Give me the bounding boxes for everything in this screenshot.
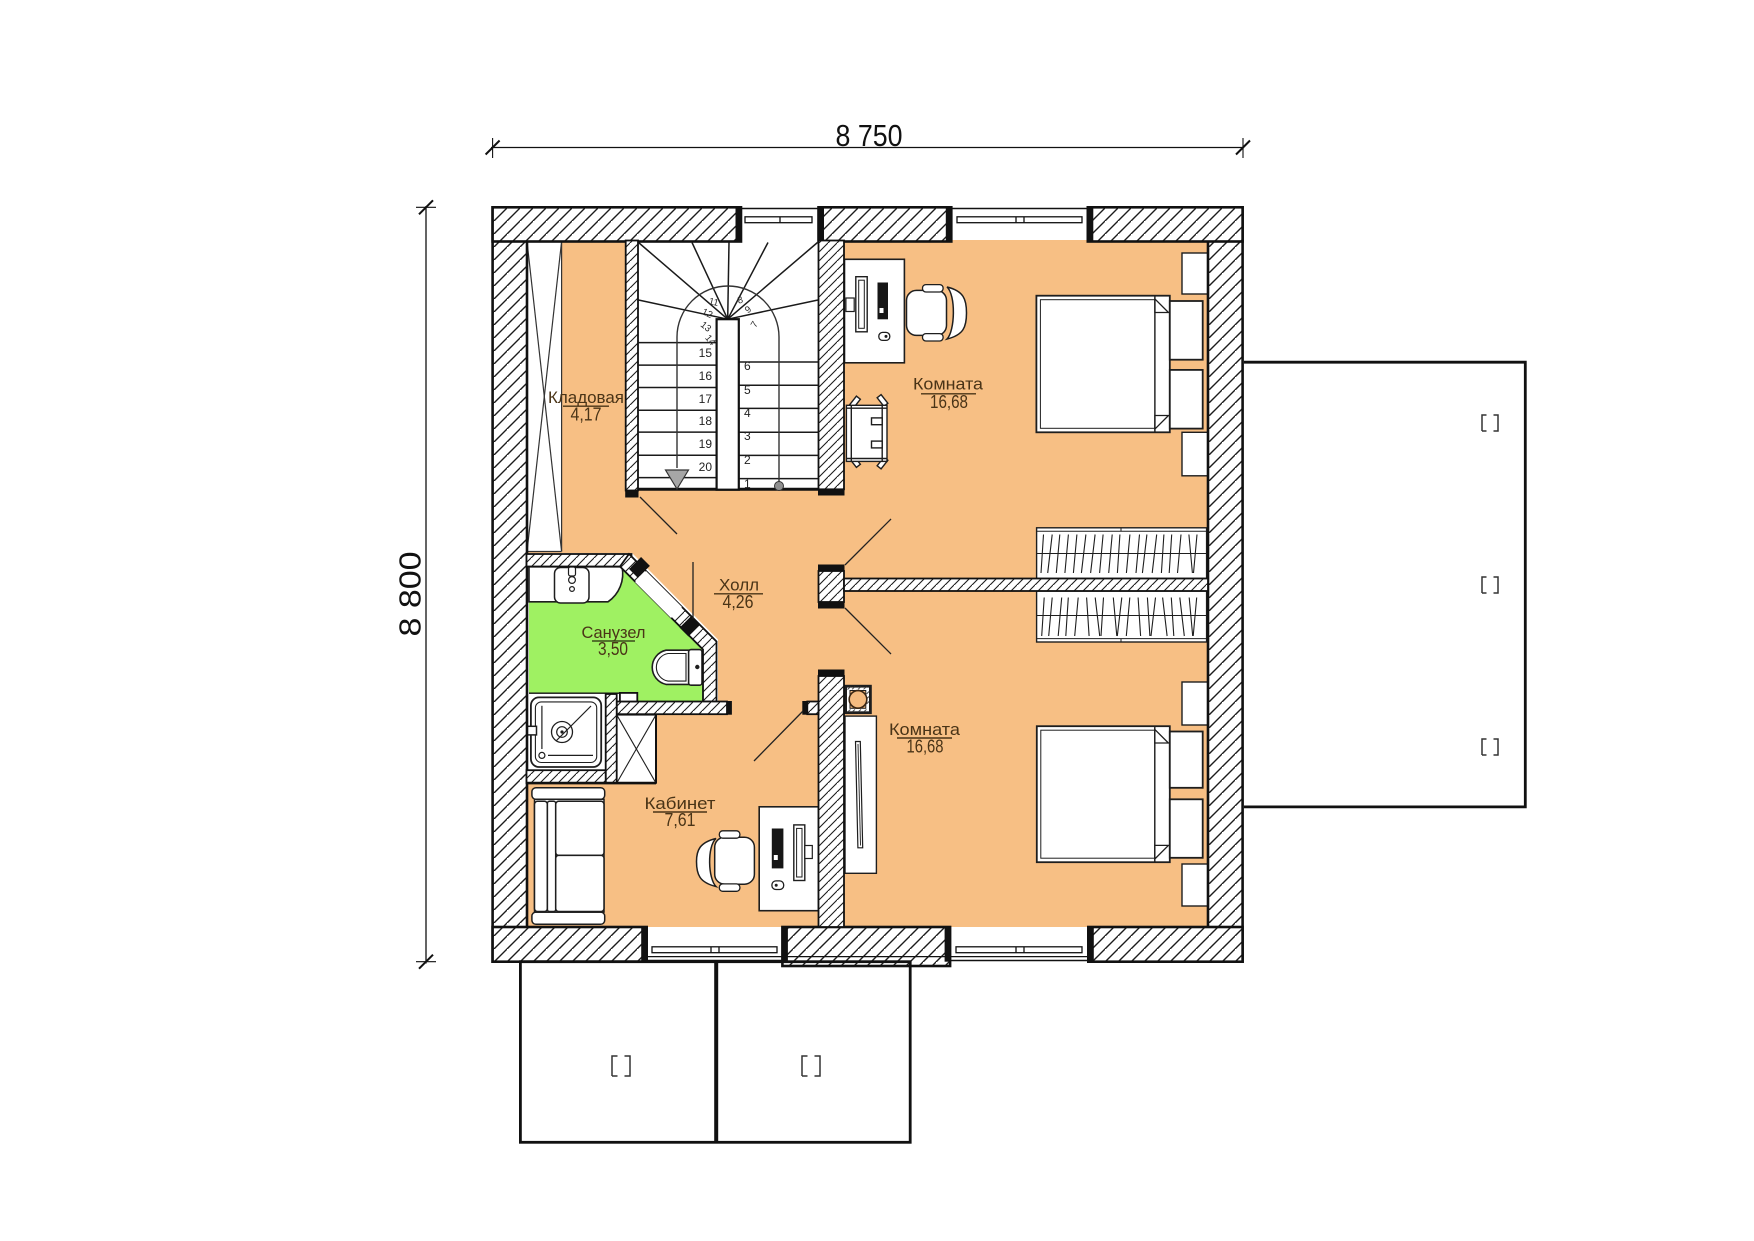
svg-text:20: 20 [699,460,713,474]
svg-text:5: 5 [744,383,751,397]
svg-text:16: 16 [699,369,713,383]
svg-text:18: 18 [699,414,713,428]
svg-text:4,17: 4,17 [571,404,602,425]
svg-text:17: 17 [699,392,713,406]
svg-text:15: 15 [699,346,713,360]
svg-text:3: 3 [744,429,751,443]
svg-text:1: 1 [744,477,751,491]
svg-text:2: 2 [744,453,751,467]
svg-text:4,26: 4,26 [723,591,754,612]
svg-text:16,68: 16,68 [907,736,944,757]
svg-text:8 750: 8 750 [836,118,903,153]
svg-text:16,68: 16,68 [930,391,968,412]
svg-text:8 800: 8 800 [393,552,428,637]
svg-text:7,61: 7,61 [665,809,696,830]
svg-text:6: 6 [744,359,751,373]
svg-text:3,50: 3,50 [598,638,628,659]
svg-text:4: 4 [744,406,751,420]
svg-text:19: 19 [699,437,713,451]
